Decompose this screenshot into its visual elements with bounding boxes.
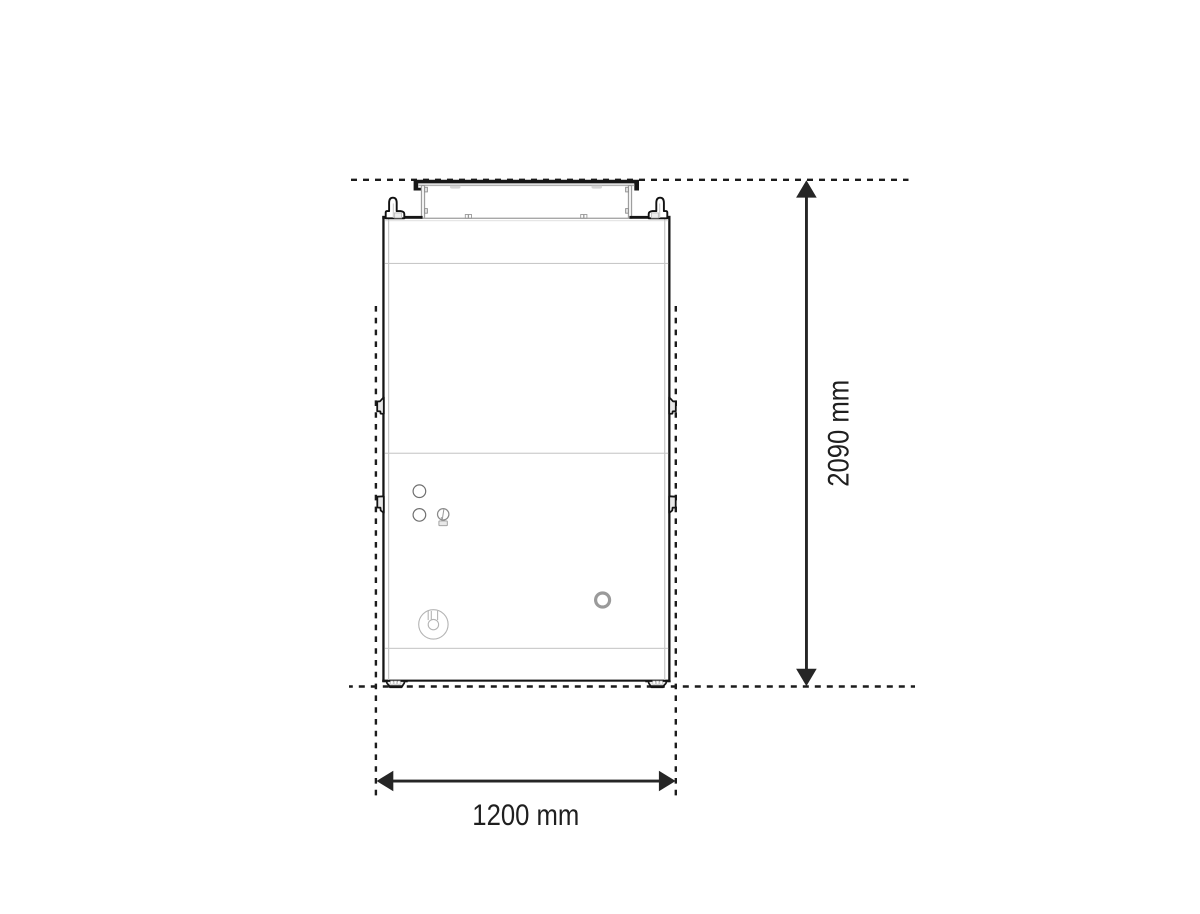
svg-text:2090 mm: 2090 mm xyxy=(823,380,855,487)
svg-text:1200 mm: 1200 mm xyxy=(472,800,579,832)
